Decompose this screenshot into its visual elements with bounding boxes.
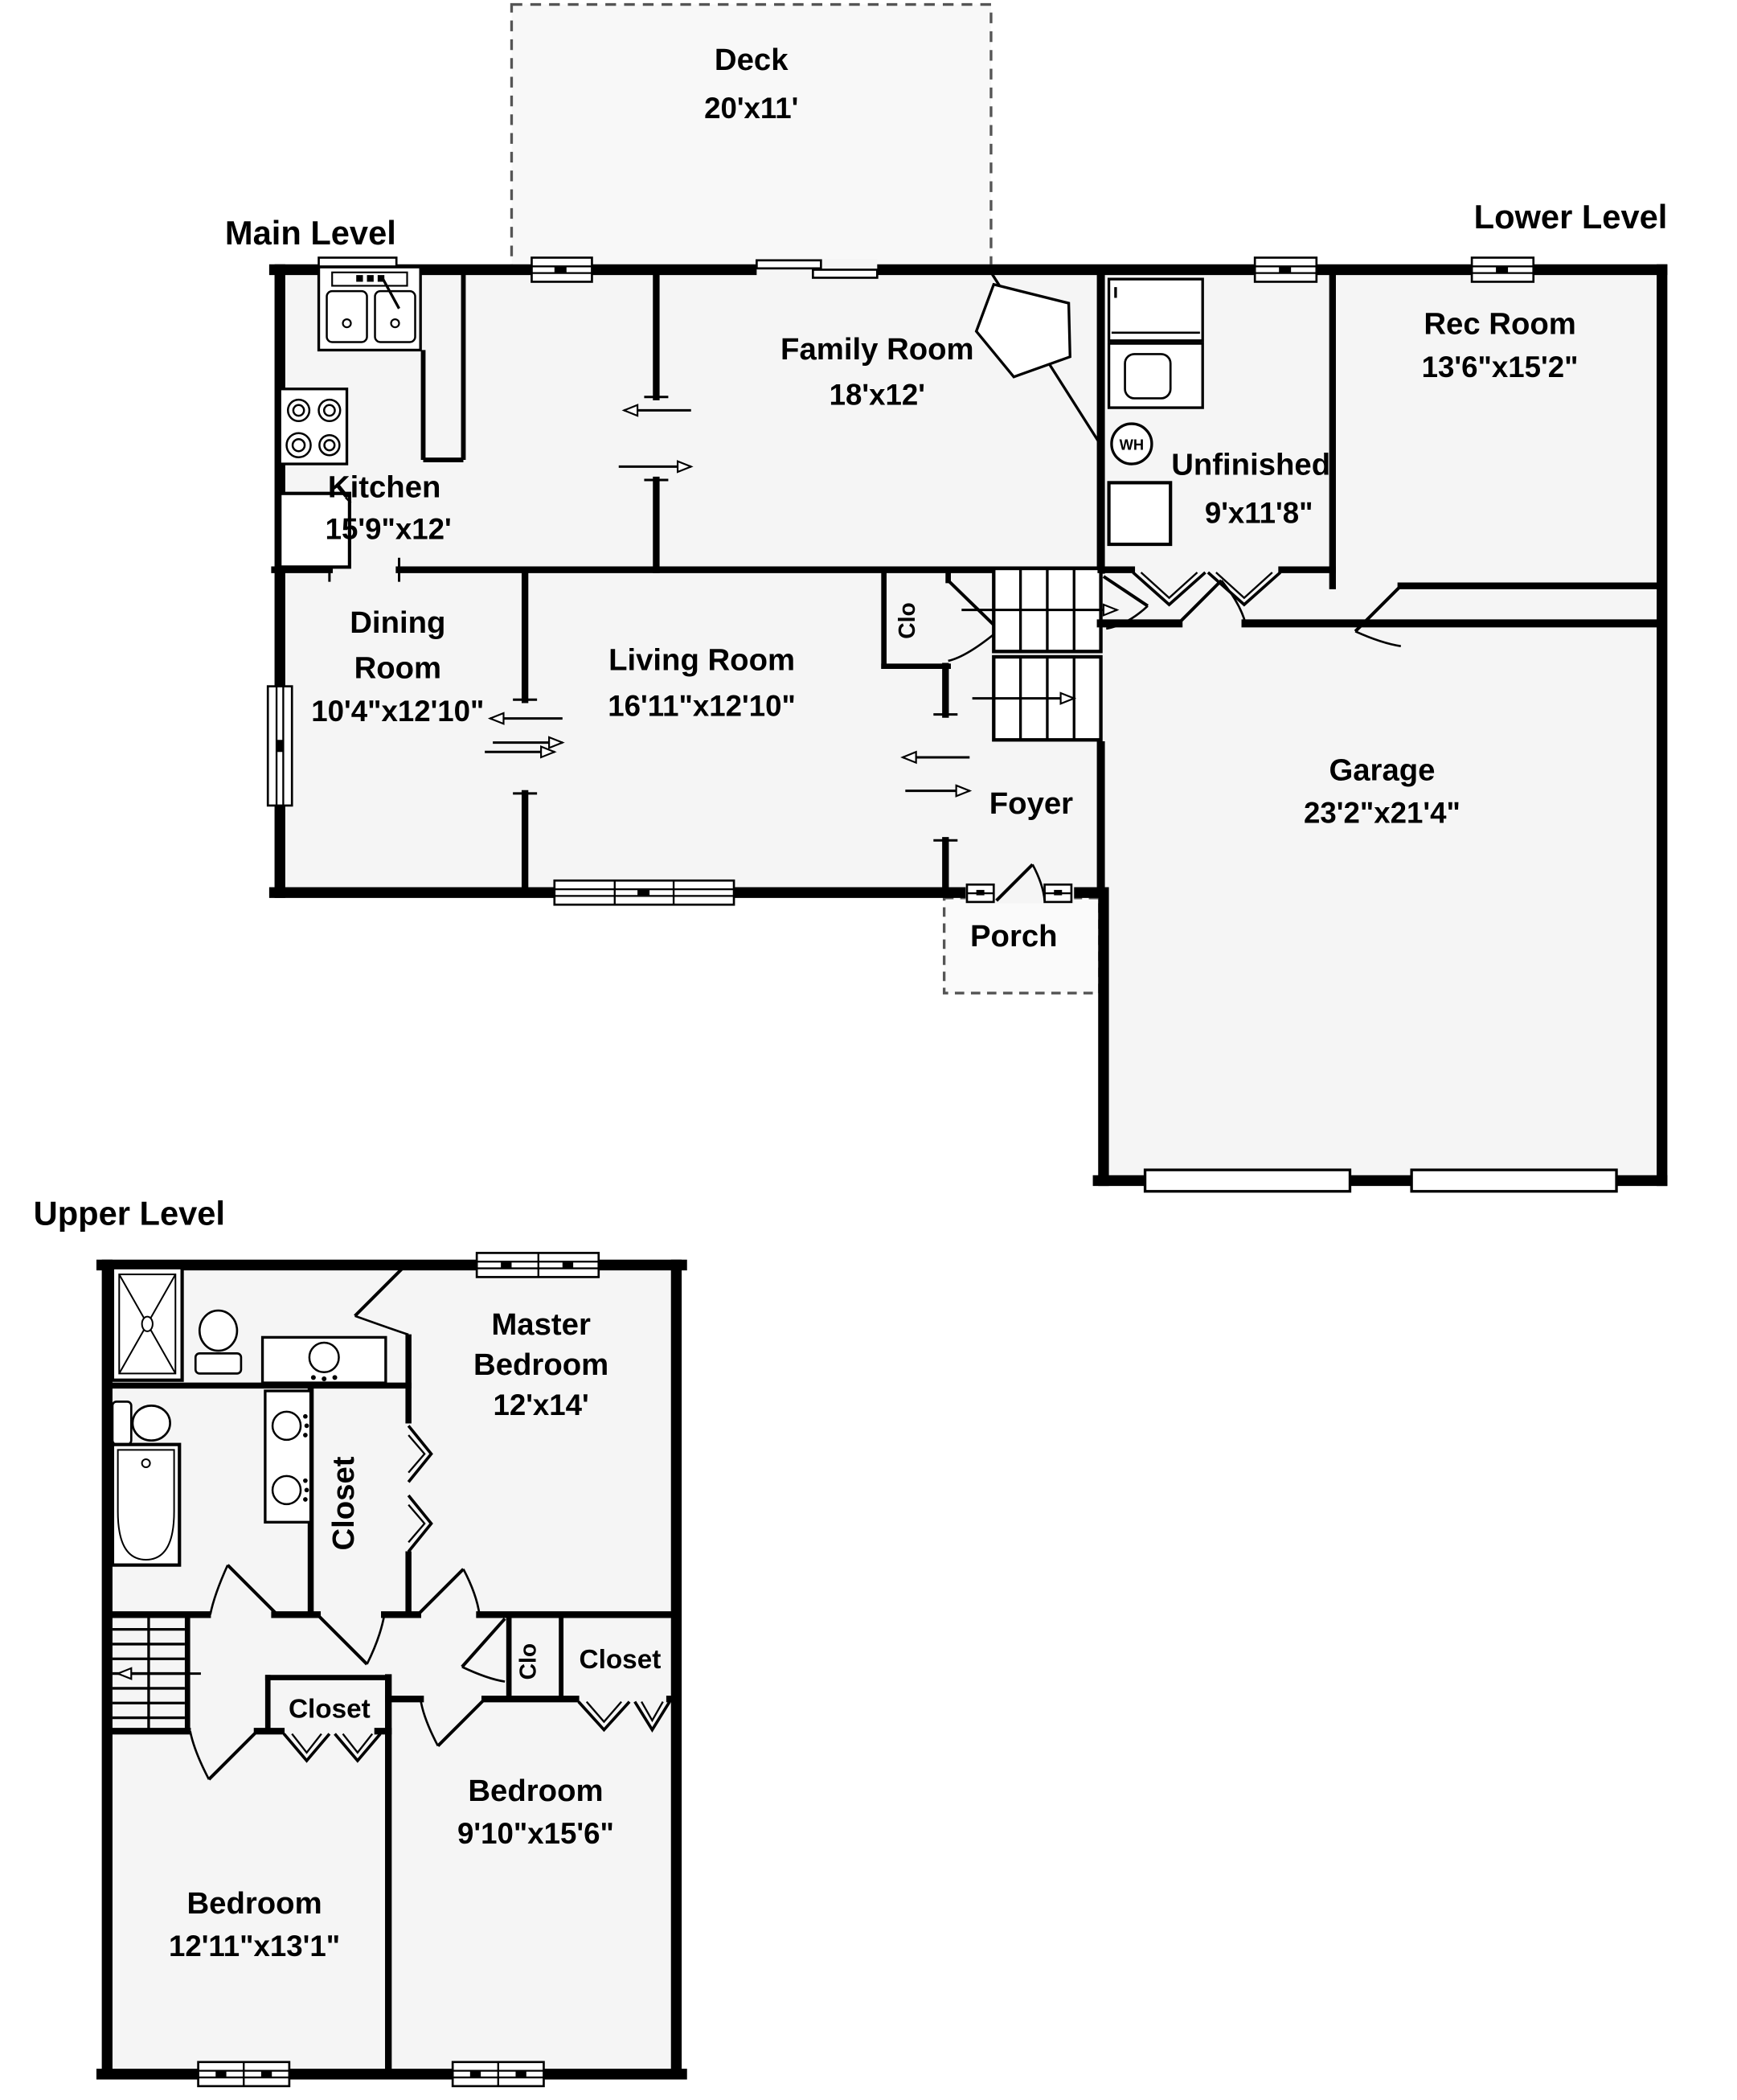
dining-room-dims: 10'4"x12'10" [311,695,484,728]
bedroom3-label: Bedroom [186,1886,322,1921]
living-room-label: Living Room [608,643,795,678]
hall-toilet-icon [113,1401,170,1444]
water-heater-label: WH [1120,437,1145,453]
porch-label: Porch [970,919,1058,954]
garage-dims: 23'2"x21'4" [1304,797,1460,830]
kitchen-label: Kitchen [328,470,441,505]
bedroom2-label: Bedroom [468,1774,603,1808]
master-toilet-icon [195,1310,241,1373]
stove-icon [280,389,346,464]
dining-room-label-1: Dining [350,605,445,640]
unfinished-label: Unfinished [1171,447,1330,482]
unfinished-dims: 9'x11'8" [1205,496,1313,529]
bedroom2-dims: 9'10"x15'6" [457,1817,614,1850]
main-level-title: Main Level [225,214,396,252]
bedroom3-closet-label: Closet [289,1695,371,1725]
hall-vanity-icon [265,1391,311,1522]
deck-label: Deck [715,43,789,77]
master-bedroom-dims: 12'x14' [493,1388,588,1421]
furnace-icon [1109,482,1171,544]
dining-room-label-2: Room [354,651,442,686]
water-heater-icon: WH [1112,424,1152,464]
shower-icon [113,1268,182,1380]
master-vanity-icon [263,1337,386,1383]
foyer-label: Foyer [989,786,1073,821]
family-room-label: Family Room [780,332,974,367]
garage-label: Garage [1329,753,1435,787]
floor-plan: Main Level Lower Level Upper Level [0,0,1737,2100]
kitchen-dims: 15'9"x12' [326,512,452,545]
washer-icon [1109,279,1203,341]
master-bedroom-label-1: Master [491,1307,591,1342]
master-bedroom-label-2: Bedroom [473,1347,608,1382]
master-closet-label: Closet [326,1456,361,1550]
rec-room-label: Rec Room [1424,306,1575,341]
living-room-dims: 16'11"x12'10" [608,689,796,722]
family-room-dims: 18'x12' [830,379,925,412]
bathtub-icon [113,1445,179,1565]
deck-dims: 20'x11' [704,92,798,125]
upper-level-title: Upper Level [34,1194,225,1232]
rec-room-dims: 13'6"x15'2" [1422,351,1579,383]
kitchen-sink-icon [319,267,421,350]
dryer-icon [1109,343,1203,408]
bedroom3-dims: 12'11"x13'1" [169,1930,340,1963]
bedroom2-closet-label: Closet [580,1645,662,1675]
hall-closet-label: Clo [895,602,920,639]
bedroom2-clo-label: Clo [515,1643,541,1680]
lower-level-title: Lower Level [1474,198,1668,236]
